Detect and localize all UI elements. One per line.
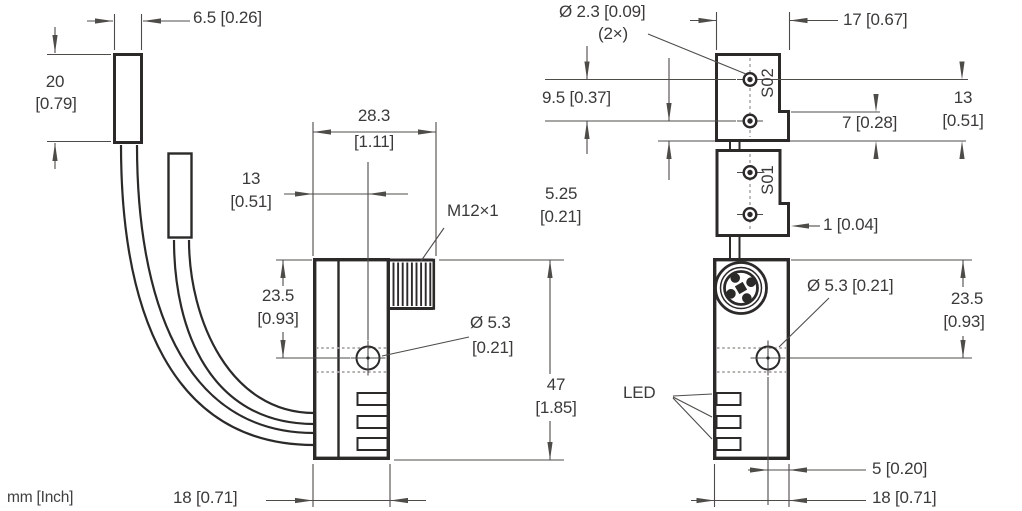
dim-hole-from-top-in: [0.93] bbox=[249, 309, 307, 329]
dim-tab-height: 7 [0.28] bbox=[842, 113, 897, 133]
m12-thread bbox=[389, 259, 434, 310]
s02-label: S02 bbox=[759, 61, 777, 105]
thread-label: M12×1 bbox=[447, 201, 498, 221]
led-slots-front bbox=[717, 393, 741, 450]
dim-body-width-side: 18 [0.71] bbox=[173, 488, 237, 508]
s01-module bbox=[717, 151, 789, 236]
dim-hole-from-top-front-mm: 23.5 bbox=[936, 289, 998, 309]
mount-hole-dia-label: Ø 2.3 [0.09] bbox=[559, 2, 645, 22]
mounting-bracket-2 bbox=[169, 154, 192, 238]
dim-hole-to-edge-mm: 5.25 bbox=[545, 184, 577, 204]
dim-head-width: 17 [0.67] bbox=[843, 10, 907, 30]
mount-hole-count-label: (2×) bbox=[598, 24, 628, 44]
led-slots-side bbox=[358, 393, 388, 450]
dim-hole-from-top-front-in: [0.93] bbox=[933, 312, 995, 332]
dim-hole-offset-in: [0.51] bbox=[221, 192, 281, 212]
dim-clamp-width: 6.5 [0.26] bbox=[193, 8, 262, 28]
drawing-linework bbox=[0, 0, 1022, 511]
dim-overall-depth-in: [1.11] bbox=[344, 132, 404, 152]
technical-drawing-canvas: 6.5 [0.26] 20 [0.79] 28.3 [1.11] 13 [0.5… bbox=[0, 0, 1022, 511]
dim-body-width-front: 18 [0.71] bbox=[872, 488, 936, 508]
front-view-drawing bbox=[715, 55, 789, 459]
dim-body-height-in: [1.85] bbox=[526, 398, 586, 418]
dim-body-height-mm: 47 bbox=[526, 375, 586, 395]
dim-clamp-height-mm: 20 bbox=[40, 72, 70, 92]
m8-connector-face bbox=[716, 263, 767, 314]
s01-label: S01 bbox=[759, 158, 777, 202]
hole-dia-label-front: Ø 5.3 [0.21] bbox=[807, 276, 893, 296]
led-label: LED bbox=[623, 383, 655, 403]
dim-overall-depth-mm: 28.3 bbox=[344, 106, 404, 126]
dim-hole-to-side: 5 [0.20] bbox=[872, 459, 927, 479]
dim-tab-offset: 1 [0.04] bbox=[823, 215, 878, 235]
thread-leader-line bbox=[421, 228, 444, 261]
dim-hole-offset-mm: 13 bbox=[221, 169, 281, 189]
mounting-bracket-1 bbox=[115, 55, 142, 143]
dim-hole-to-edge-in: [0.21] bbox=[540, 207, 581, 227]
units-label: mm [Inch] bbox=[7, 489, 73, 507]
hole-dia-leader-line bbox=[382, 337, 469, 356]
dim-hole-from-top-mm: 23.5 bbox=[249, 286, 307, 306]
hole-dia-label-mm: Ø 5.3 bbox=[470, 313, 511, 333]
dim-clamp-height-in: [0.79] bbox=[26, 94, 86, 114]
dim-mount-hole-spacing: 9.5 [0.37] bbox=[542, 88, 611, 108]
dim-head-height-in: [0.51] bbox=[933, 111, 993, 131]
dim-head-height-mm: 13 bbox=[933, 88, 993, 108]
hole-dia-label-in: [0.21] bbox=[472, 338, 513, 358]
